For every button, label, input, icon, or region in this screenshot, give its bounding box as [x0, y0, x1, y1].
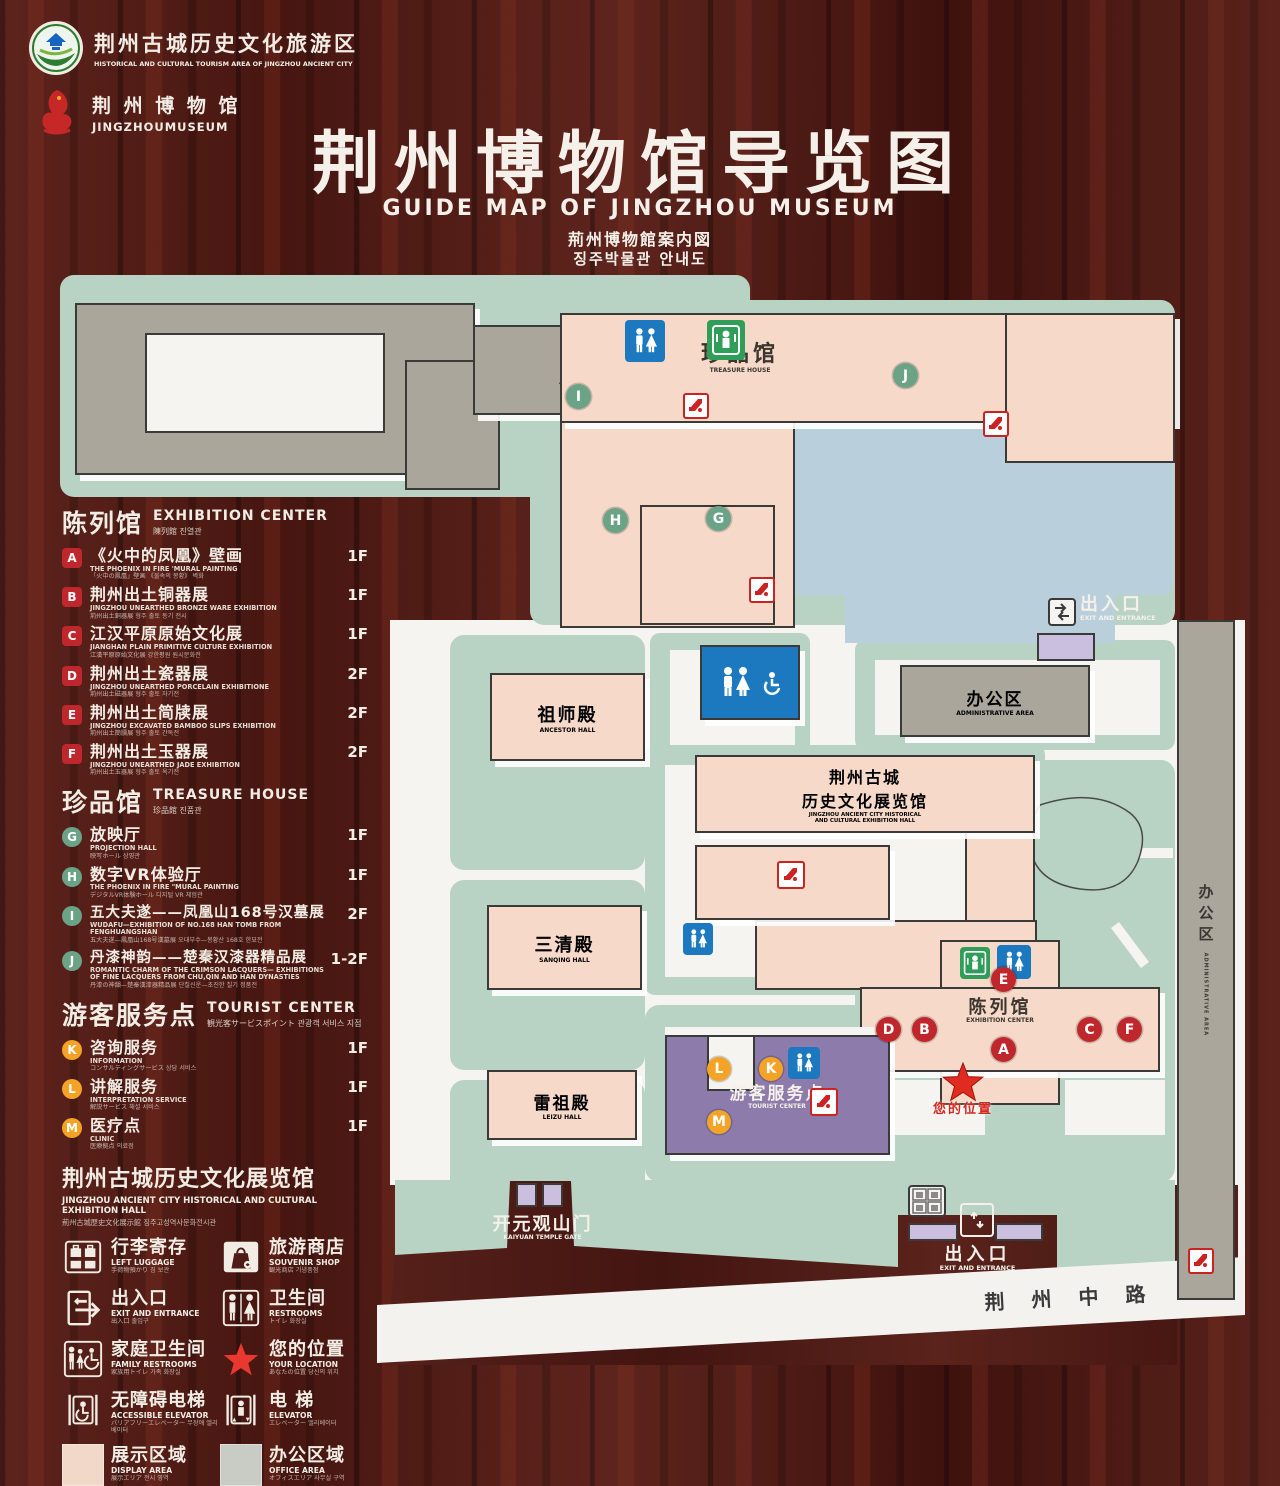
exit-ne-icon — [1048, 598, 1076, 626]
right-edge-road — [1238, 620, 1245, 1300]
treasure-house-right-block — [1005, 313, 1175, 463]
road-label: 荆 州 中 路 — [960, 1281, 1181, 1315]
restrooms-icon — [220, 1287, 262, 1329]
legend-item-D: D 荆州出土瓷器展JINGZHOU UNEARTHED PORCELAIN EX… — [62, 665, 368, 699]
poster-title: 荆州博物馆导览图 — [0, 108, 1280, 207]
sanqing-hall-building: 三清殿 SANQING HALL — [487, 905, 642, 990]
south-gate-block-left — [908, 1223, 958, 1241]
admin-strip-east: 办公区 ADMINISTRATIVE AREA — [1177, 620, 1235, 1300]
legend-history-hall: 荆州古城历史文化展览馆 JINGZHOU ANCIENT CITY HISTOR… — [62, 1161, 368, 1228]
kaiyuan-gate-label: 开元观山门 KAIYUAN TEMPLE GATE — [455, 1215, 630, 1242]
south-gate-block-right — [995, 1223, 1043, 1241]
tourism-area-logo-en: HISTORICAL AND CULTURAL TOURISM AREA OF … — [94, 60, 358, 68]
your-location-label: 您的位置 — [900, 1103, 1026, 1118]
marker-H: H — [603, 508, 628, 533]
legend-item-J: J 丹漆神韵——楚秦汉漆器精品展ROMANTIC CHARM OF THE CR… — [62, 950, 368, 990]
treasure-elevator-icon — [707, 320, 745, 360]
legend-item-E: E 荆州出土简牍展JINGZHOU EXCAVATED BAMBOO SLIPS… — [62, 704, 368, 738]
marker-G: G — [706, 506, 731, 531]
legend-facility-your-location: 您的位置YOUR LOCATIONあなたの位置 당신의 위치 — [220, 1338, 368, 1380]
kaiyuan-gate-block-right — [542, 1183, 563, 1207]
treasure-escalator-icon-1 — [683, 393, 709, 419]
sanqing-restroom-icon — [683, 923, 713, 955]
kaiyuan-gate-block-left — [516, 1183, 537, 1207]
marker-E: E — [991, 967, 1016, 992]
legend-item-M: M 医疗点CLINIC医療拠点 의료점 1F — [62, 1117, 368, 1151]
legend-item-I: I 五大夫遂——凤凰山168号汉墓展WUDAFU—EXHIBITION OF N… — [62, 905, 368, 945]
south-left-luggage-icon — [908, 1185, 946, 1217]
tourism-area-logo-row: 荆州古城历史文化旅游区 HISTORICAL AND CULTURAL TOUR… — [28, 20, 358, 76]
central-restroom-building — [700, 645, 800, 720]
souvenir-shop-icon — [220, 1236, 262, 1278]
legend-panel: 陈列馆 EXHIBITION CENTER陳列館 진열관 A 《火中的凤凰》壁画… — [62, 498, 368, 1486]
legend-item-C: C 江汉平原原始文化展JIANGHAN PLAIN PRIMITIVE CULT… — [62, 625, 368, 659]
legend-facility-family-restrooms: 家庭卫生间FAMILY RESTROOMS家族用トイレ 가족 화장실 — [62, 1338, 220, 1380]
south-elevator-arrows-icon — [960, 1203, 994, 1237]
legend-item-H: H 数字VR体验厅THE PHOENIX IN FIRE "MURAL PAIN… — [62, 866, 368, 900]
poster-title-en: GUIDE MAP OF JINGZHOU MUSEUM — [0, 196, 1280, 221]
guide-map-poster: { "header": { "tourism_logo": {"zh": "荆州… — [0, 0, 1280, 1451]
exit-s-label: 出入口 EXIT AND ENTRANCE — [910, 1245, 1045, 1272]
legend-item-G: G 放映厅PROJECTION HALL映写ホール 상영관 1F — [62, 826, 368, 860]
accessible-restroom-icon — [759, 670, 785, 696]
jingzhou-middle-road — [377, 1257, 1245, 1363]
tourism-area-logo-icon — [28, 20, 84, 76]
ancestor-hall-building: 祖师殿 ANCESTOR HALL — [490, 673, 645, 761]
exit-entrance-icon — [62, 1287, 104, 1329]
your-location-star-icon — [942, 1062, 984, 1102]
legend-treasure-header: 珍品馆 TREASURE HOUSE珍品館 진품관 — [62, 783, 368, 819]
elevator-icon — [220, 1389, 262, 1431]
legend-facility-office-area: 办公区域OFFICE AREAオフィスエリア 사무실 구역 — [220, 1444, 368, 1486]
marker-A: A — [991, 1037, 1016, 1062]
history-hall-escalator-icon — [777, 861, 805, 889]
exit-ne-gate-block — [1037, 633, 1095, 661]
strip-escalator-icon — [1188, 1248, 1214, 1274]
marker-K: K — [759, 1057, 783, 1081]
exhibition-elevator-icon — [960, 947, 990, 979]
restroom-icon — [715, 663, 755, 703]
marker-M: M — [707, 1110, 731, 1134]
legend-tourist-header: 游客服务点 TOURIST CENTER観光客サービスポイント 관광객 서비스 … — [62, 996, 368, 1032]
legend-item-A: A 《火中的凤凰》壁画THE PHOENIX IN FIRE 'MURAL PA… — [62, 547, 368, 581]
legend-facility-restrooms: 卫生间RESTROOMSトイレ 화장실 — [220, 1287, 368, 1329]
marker-D: D — [876, 1017, 901, 1042]
marker-B: B — [912, 1017, 937, 1042]
exhibition-center-label: 陈列馆 EXHIBITION CENTER — [920, 998, 1080, 1025]
poster-title-ja: 荊州博物館案内図 — [0, 226, 1280, 250]
legend-facility-elevator: 电 梯ELEVATORエレベーター 엘리베이터 — [220, 1389, 368, 1435]
tourist-escalator-icon — [810, 1088, 838, 1116]
treasure-restroom-icon — [625, 320, 665, 362]
marker-L: L — [707, 1057, 731, 1081]
admin-building-right: 办公区 ADMINISTRATIVE AREA — [900, 665, 1090, 737]
exit-ne-label: 出入口 EXIT AND ENTRANCE — [1080, 595, 1210, 622]
treasure-escalator-icon-2 — [983, 411, 1009, 437]
left-luggage-icon — [62, 1236, 104, 1278]
tourist-restroom-icon — [788, 1047, 820, 1079]
admin-strip-label: 办公区 ADMINISTRATIVE AREA — [1196, 884, 1217, 1036]
history-hall-top-bar: 荆州古城 历史文化展览馆 JINGZHOU ANCIENT CITY HISTO… — [695, 755, 1035, 833]
legend-item-K: K 咨询服务INFORMATIONコンサルティングサービス 상담 서비스 1F — [62, 1039, 368, 1073]
display-area-swatch — [62, 1444, 104, 1486]
legend-item-F: F 荆州出土玉器展JINGZHOU UNEARTHED JADE EXHIBIT… — [62, 743, 368, 777]
exhibition-south-path-right — [1065, 1080, 1165, 1135]
legend-facility-left-luggage: 行李寄存LEFT LUGGAGE手荷物預かり 짐 보관 — [62, 1236, 220, 1278]
legend-facilities-grid: 行李寄存LEFT LUGGAGE手荷物預かり 짐 보관 旅游商店SOUVENIR… — [62, 1236, 368, 1486]
office-area-swatch — [220, 1444, 262, 1486]
tourist-center-label: 游客服务点 TOURIST CENTER — [677, 1085, 877, 1111]
legend-facility-display-area: 展示区域DISPLAY AREA展示エリア 전시 영역 — [62, 1444, 220, 1486]
marker-F: F — [1117, 1017, 1142, 1042]
legend-exhibition-header: 陈列馆 EXHIBITION CENTER陳列館 진열관 — [62, 504, 368, 540]
leizu-hall-building: 雷祖殿 LEIZU HALL — [487, 1070, 637, 1140]
legend-item-B: B 荆州出土铜器展JINGZHOU UNEARTHED BRONZE WARE … — [62, 586, 368, 620]
marker-I: I — [566, 384, 591, 409]
accessible-elevator-icon — [62, 1389, 104, 1431]
legend-facility-accessible-elevator: 无障碍电梯ACCESSIBLE ELEVATORバリアフリーエレベーター 무장애… — [62, 1389, 220, 1435]
marker-J: J — [893, 363, 918, 388]
marker-C: C — [1077, 1017, 1102, 1042]
legend-facility-exit: 出入口EXIT AND ENTRANCE出入口 출입구 — [62, 1287, 220, 1329]
legend-facility-souvenir-shop: 旅游商店SOUVENIR SHOP観光商店 기념품점 — [220, 1236, 368, 1278]
tourism-area-logo-zh: 荆州古城历史文化旅游区 — [94, 28, 358, 58]
family-restrooms-icon — [62, 1338, 104, 1380]
your-location-star-legend-icon — [220, 1338, 262, 1380]
admin-building-courtyard — [145, 333, 385, 433]
treasure-escalator-icon-3 — [749, 577, 775, 603]
legend-item-L: L 讲解服务INTERPRETATION SERVICE解説サービス 해설 서비… — [62, 1078, 368, 1112]
